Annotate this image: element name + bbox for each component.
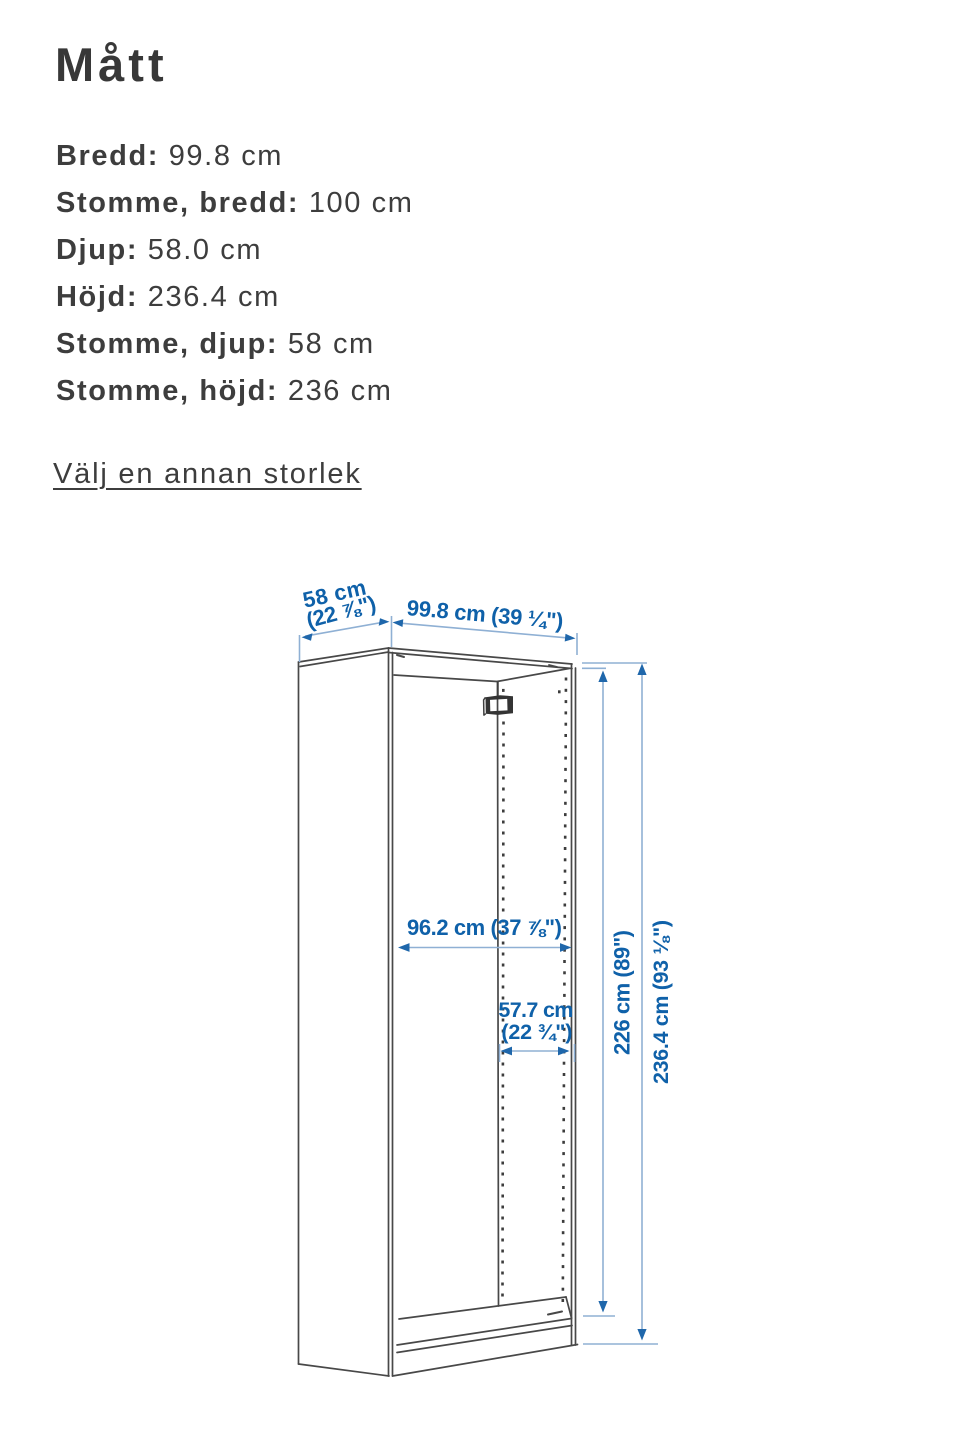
svg-text:226 cm (89"): 226 cm (89")	[610, 930, 635, 1055]
svg-text:(22 ¾"): (22 ¾")	[501, 1020, 572, 1044]
svg-text:57.7 cm: 57.7 cm	[498, 998, 573, 1022]
svg-text:96.2 cm (37 ⅞"): 96.2 cm (37 ⅞")	[407, 915, 562, 940]
svg-text:236.4 cm (93 ⅛"): 236.4 cm (93 ⅛")	[649, 920, 673, 1084]
svg-text:99.8 cm (39 ¼"): 99.8 cm (39 ¼")	[406, 595, 565, 634]
